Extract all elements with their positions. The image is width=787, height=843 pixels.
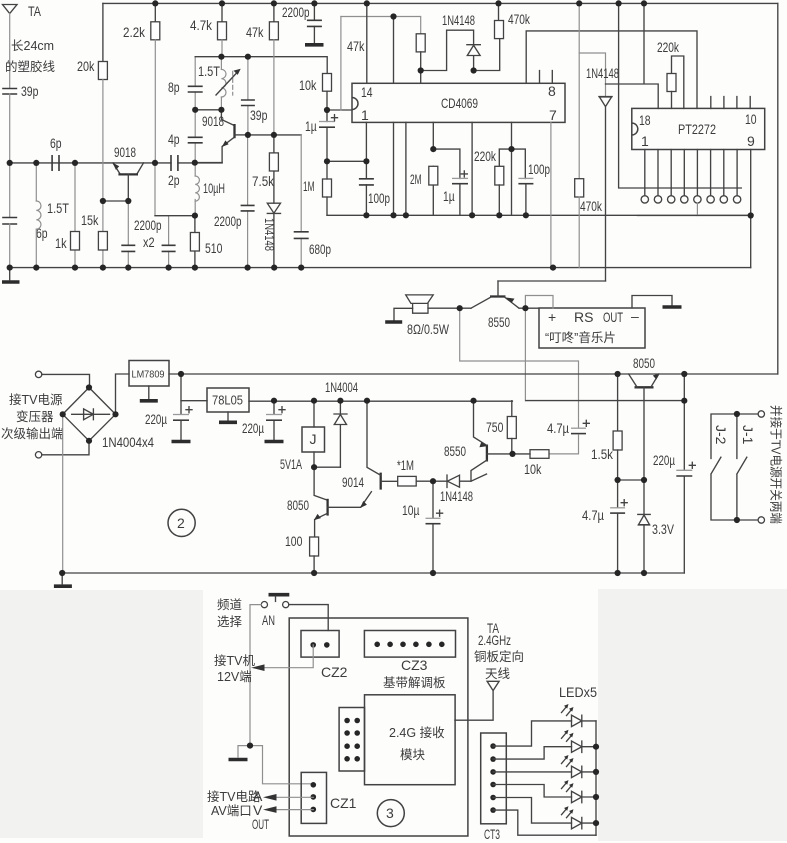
svg-text:8050: 8050 [287,497,309,513]
svg-text:100: 100 [285,533,303,549]
svg-text:长24cm: 长24cm [11,39,54,53]
svg-text:220µ: 220µ [242,420,264,436]
svg-text:的塑胶线: 的塑胶线 [5,59,56,74]
svg-text:4.7µ: 4.7µ [582,507,604,523]
svg-text:7.5k: 7.5k [252,173,275,189]
svg-text:CZ1: CZ1 [330,795,357,811]
svg-text:680p: 680p [309,241,331,257]
svg-text:1N4004x4: 1N4004x4 [102,434,154,450]
svg-text:750: 750 [486,419,504,435]
svg-text:2p: 2p [168,172,180,188]
svg-text:3: 3 [386,805,394,821]
svg-text:220k: 220k [474,148,497,164]
svg-text:3.3V: 3.3V [652,521,674,537]
svg-text:9018: 9018 [202,113,224,129]
svg-text:1: 1 [641,133,649,149]
svg-text:2.4GHz: 2.4GHz [478,632,511,648]
svg-text:LM7809: LM7809 [132,369,165,381]
svg-text:2200p: 2200p [282,4,310,20]
svg-text:78L05: 78L05 [212,393,243,408]
svg-text:*1M: *1M [397,457,414,473]
svg-text:次级输出端: 次级输出端 [1,426,64,441]
svg-text:100p: 100p [368,190,390,206]
svg-text:频道: 频道 [217,598,243,612]
svg-text:接TV机: 接TV机 [214,653,255,668]
svg-text:1N4148: 1N4148 [440,488,473,504]
svg-text:PT2272: PT2272 [678,121,716,137]
svg-text:CZ2: CZ2 [321,664,348,680]
svg-text:1.5T: 1.5T [47,200,69,216]
svg-text:“叮咚”音乐片: “叮咚”音乐片 [545,330,616,345]
svg-text:OUT: OUT [603,309,623,325]
svg-text:6p: 6p [36,225,48,241]
svg-text:基带解调板: 基带解调板 [383,676,446,690]
svg-text:8050: 8050 [633,355,655,371]
svg-text:2: 2 [177,515,185,531]
svg-text:4p: 4p [168,131,180,147]
svg-text:2.4G 接收: 2.4G 接收 [389,725,445,740]
svg-text:2.2k: 2.2k [123,24,146,40]
svg-text:2M: 2M [410,171,422,187]
svg-text:1N4004: 1N4004 [325,379,358,395]
svg-text:并接于TV电源开关两端: 并接于TV电源开关两端 [769,405,784,524]
svg-text:8550: 8550 [488,314,510,330]
svg-text:1.5k: 1.5k [591,446,614,462]
svg-text:1N4148: 1N4148 [262,218,277,251]
svg-text:2200p: 2200p [214,213,242,229]
svg-text:OUT: OUT [252,816,269,832]
svg-text:RS: RS [574,309,593,325]
svg-text:39p: 39p [250,107,268,123]
svg-text:AV端口: AV端口 [211,804,252,818]
svg-text:9014: 9014 [342,474,364,490]
svg-text:J-2: J-2 [713,425,729,445]
svg-text:CZ3: CZ3 [401,657,428,673]
svg-text:220µ: 220µ [145,411,167,427]
svg-text:J: J [310,431,317,447]
svg-text:18: 18 [639,112,651,128]
svg-text:–: – [631,308,639,324]
svg-text:470k: 470k [580,198,603,214]
svg-text:8: 8 [548,83,556,99]
svg-text:AN: AN [262,612,275,628]
svg-text:14: 14 [361,84,373,100]
svg-text:220µ: 220µ [653,452,675,468]
svg-text:4.7µ: 4.7µ [547,420,569,436]
svg-text:10k: 10k [299,77,317,93]
svg-text:10k: 10k [524,461,542,477]
svg-text:+: + [548,309,556,325]
svg-text:15k: 15k [81,212,99,228]
svg-text:6p: 6p [50,135,62,151]
svg-text:铜板定向: 铜板定向 [474,649,524,664]
svg-text:模块: 模块 [400,748,426,762]
svg-text:1: 1 [361,107,369,123]
svg-text:J-1: J-1 [740,425,756,445]
svg-text:变压器: 变压器 [16,409,54,424]
svg-text:20k: 20k [77,58,95,74]
svg-text:8550: 8550 [444,443,466,459]
svg-text:5V1A: 5V1A [280,456,302,472]
svg-text:10µ: 10µ [402,502,419,518]
svg-text:220k: 220k [657,39,680,55]
svg-text:510: 510 [205,240,223,256]
svg-text:LEDx5: LEDx5 [559,684,597,700]
svg-text:1.5T: 1.5T [198,63,220,79]
svg-text:TA: TA [28,3,42,19]
svg-text:选择: 选择 [217,615,243,629]
svg-text:47k: 47k [246,24,264,40]
svg-text:10µH: 10µH [203,180,225,196]
svg-text:9: 9 [747,133,755,149]
svg-text:2200p: 2200p [134,217,162,233]
svg-text:8p: 8p [168,79,180,95]
svg-text:1µ: 1µ [305,118,317,134]
svg-text:7: 7 [549,107,557,123]
svg-text:1µ: 1µ [443,188,455,204]
svg-text:12V端: 12V端 [217,670,252,684]
svg-text:8Ω/0.5W: 8Ω/0.5W [407,321,450,337]
svg-text:1N4148: 1N4148 [442,12,475,28]
svg-text:470k: 470k [508,11,531,27]
svg-text:9018: 9018 [114,144,136,160]
svg-text:100p: 100p [528,161,550,177]
svg-text:1M: 1M [303,178,315,194]
svg-text:10: 10 [745,111,757,127]
svg-text:39p: 39p [21,83,39,99]
svg-text:47k: 47k [347,38,365,54]
svg-text:4.7k: 4.7k [190,17,213,33]
svg-text:接TV电源: 接TV电源 [9,392,63,407]
svg-text:CT3: CT3 [484,826,500,842]
svg-text:天线: 天线 [485,667,511,681]
svg-text:x2: x2 [143,234,155,250]
svg-text:1N4148: 1N4148 [586,65,619,81]
svg-text:CD4069: CD4069 [441,95,478,111]
svg-text:1k: 1k [55,235,67,251]
